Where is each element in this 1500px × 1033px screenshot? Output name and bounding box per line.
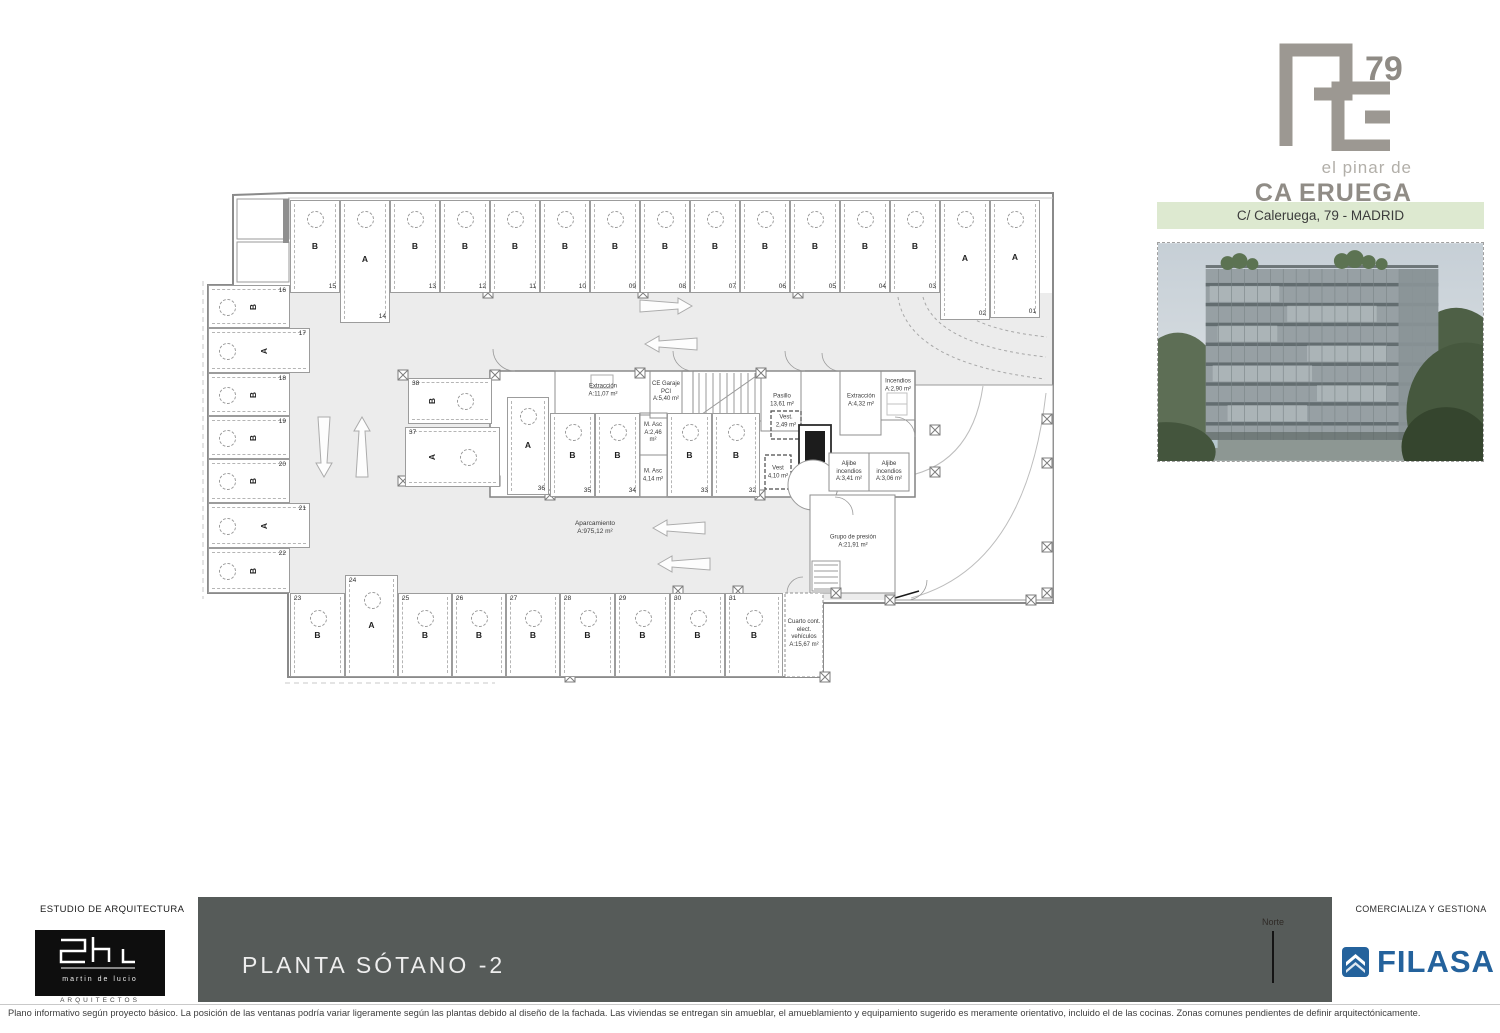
- pillar-circle-icon: [690, 610, 707, 627]
- parking-space-type: A: [260, 347, 269, 353]
- parking-space-number: 23: [294, 596, 301, 603]
- pillar-circle-icon: [417, 610, 434, 627]
- parking-space-type: A: [508, 441, 548, 450]
- north-arrow-icon: [1272, 931, 1274, 983]
- parking-space-type: B: [641, 242, 689, 251]
- parking-space-number: 38: [412, 381, 419, 388]
- parking-space-type: B: [591, 242, 639, 251]
- parking-space: B16: [208, 285, 290, 328]
- pillar-circle-icon: [746, 610, 763, 627]
- building-render-photo: [1157, 242, 1484, 462]
- parking-space-number: 07: [729, 284, 736, 291]
- column-symbol-icon: [756, 368, 766, 378]
- parking-space-type: A: [260, 522, 269, 528]
- parking-space: B09: [590, 200, 640, 293]
- parking-space-type: B: [441, 242, 489, 251]
- pillar-circle-icon: [460, 449, 477, 466]
- parking-space: B08: [640, 200, 690, 293]
- title-bar: PLANTA SÓTANO -2 Norte: [198, 897, 1332, 1002]
- parking-space: B33: [667, 413, 712, 497]
- pillar-circle-icon: [957, 211, 974, 228]
- pillar-circle-icon: [219, 430, 236, 447]
- parking-space: A36: [507, 397, 549, 495]
- pillar-circle-icon: [219, 473, 236, 490]
- parking-space-type: B: [561, 631, 614, 640]
- parking-space: B12: [440, 200, 490, 293]
- pillar-circle-icon: [1007, 211, 1024, 228]
- parking-space-number: 08: [679, 284, 686, 291]
- parking-space-type: B: [399, 631, 451, 640]
- parking-space-number: 30: [674, 596, 681, 603]
- parking-space-type: B: [428, 398, 437, 404]
- parking-space-number: 27: [510, 596, 517, 603]
- parking-space-type: A: [991, 253, 1039, 262]
- pillar-circle-icon: [657, 211, 674, 228]
- pillar-circle-icon: [219, 563, 236, 580]
- parking-space-type: B: [249, 567, 258, 573]
- pillar-circle-icon: [219, 343, 236, 360]
- parking-space-number: 01: [1029, 309, 1036, 316]
- pillar-circle-icon: [635, 610, 652, 627]
- parking-space: B35: [550, 413, 595, 497]
- parking-space-number: 12: [479, 284, 486, 291]
- project-logo-mark-icon: 79: [1262, 36, 1412, 151]
- floor-plan: A01A02B03B04B05B06B07B08B09B10B11B12B13A…: [195, 185, 1075, 695]
- parking-space-number: 16: [279, 288, 286, 295]
- parking-space-type: A: [346, 621, 397, 630]
- pillar-circle-icon: [219, 387, 236, 404]
- parking-space: B23: [290, 593, 345, 677]
- room-label-incendios: IncendiosA:2,90 m²: [881, 379, 915, 394]
- filasa-logo: FILASA: [1342, 944, 1495, 980]
- parking-space-number: 34: [629, 488, 636, 495]
- parking-space-type: B: [491, 242, 539, 251]
- pillar-circle-icon: [219, 299, 236, 316]
- parking-space: B13: [390, 200, 440, 293]
- parking-space: B15: [290, 200, 340, 293]
- parking-space-type: B: [668, 451, 711, 460]
- parking-space-number: 24: [349, 578, 356, 585]
- parking-space: B38: [408, 378, 492, 424]
- parking-space: B07: [690, 200, 740, 293]
- column-symbol-icon: [831, 588, 841, 598]
- parking-space-type: B: [249, 478, 258, 484]
- building-illustration: [1158, 243, 1483, 461]
- logo-number: 79: [1365, 50, 1403, 88]
- parking-space-type: B: [691, 242, 739, 251]
- parking-space-type: B: [249, 303, 258, 309]
- parking-space: B30: [670, 593, 725, 677]
- parking-space-number: 18: [279, 376, 286, 383]
- parking-space-number: 03: [929, 284, 936, 291]
- parking-space-number: 29: [619, 596, 626, 603]
- parking-space-number: 15: [329, 284, 336, 291]
- project-logo: 79 el pinar de CA ERUEGA: [1262, 36, 1412, 208]
- parking-space-type: B: [726, 631, 782, 640]
- parking-space: A37: [405, 427, 500, 487]
- studio-label: ESTUDIO DE ARQUITECTURA: [40, 904, 184, 915]
- parking-space-type: A: [428, 454, 437, 460]
- parking-space: A02: [940, 200, 990, 320]
- pillar-circle-icon: [364, 592, 381, 609]
- pillar-circle-icon: [807, 211, 824, 228]
- parking-space-type: B: [891, 242, 939, 251]
- room-label-pasillo: Pasillo13,61 m²: [767, 394, 797, 409]
- pillar-circle-icon: [307, 211, 324, 228]
- column-symbol-icon: [820, 672, 830, 682]
- room-label-m_asc2: M. Asc4,14 m²: [641, 469, 665, 484]
- parking-space-type: B: [291, 242, 339, 251]
- parking-space-type: B: [551, 451, 594, 460]
- room-label-m_asc1: M. AscA:2,46 m²: [641, 422, 665, 445]
- pillar-circle-icon: [907, 211, 924, 228]
- parking-space-number: 09: [629, 284, 636, 291]
- pillar-circle-icon: [407, 211, 424, 228]
- pillar-circle-icon: [457, 393, 474, 410]
- parking-space: B19: [208, 416, 290, 459]
- parking-space: B29: [615, 593, 670, 677]
- parking-space-number: 25: [402, 596, 409, 603]
- room-label-cuarto_vehiculos: Cuarto cont. elect. vehículosA:15,67 m²: [784, 619, 824, 649]
- room-label-extraccion1: ExtracciónA:11,07 m²: [581, 384, 625, 399]
- disclaimer-text: Plano informativo según proyecto básico.…: [0, 1004, 1500, 1018]
- parking-space-type: B: [596, 451, 639, 460]
- parking-space: A14: [340, 200, 390, 323]
- pillar-circle-icon: [580, 610, 597, 627]
- pillar-circle-icon: [610, 424, 627, 441]
- parking-space-number: 31: [729, 596, 736, 603]
- parking-area-label: AparcamientoA:975,12 m²: [560, 520, 630, 536]
- architect-subtitle: ARQUITECTOS: [35, 997, 165, 1004]
- parking-space-number: 28: [564, 596, 571, 603]
- parking-space-number: 26: [456, 596, 463, 603]
- parking-space: B20: [208, 459, 290, 503]
- column-symbol-icon: [1042, 414, 1052, 424]
- pillar-circle-icon: [357, 211, 374, 228]
- parking-space: B32: [712, 413, 760, 497]
- pillar-circle-icon: [457, 211, 474, 228]
- parking-space: B06: [740, 200, 790, 293]
- parking-space-type: B: [713, 451, 759, 460]
- architect-monogram-icon: [35, 930, 165, 974]
- column-symbol-icon: [1042, 458, 1052, 468]
- column-symbol-icon: [635, 368, 645, 378]
- filasa-roof-icon: [1342, 947, 1369, 977]
- pillar-circle-icon: [471, 610, 488, 627]
- parking-space-type: B: [541, 242, 589, 251]
- address-text: C/ Caleruega, 79 - MADRID: [1237, 208, 1404, 223]
- parking-space-number: 22: [279, 551, 286, 558]
- pillar-circle-icon: [507, 211, 524, 228]
- parking-space-type: B: [616, 631, 669, 640]
- parking-space: A21: [208, 503, 310, 548]
- parking-space: B18: [208, 373, 290, 416]
- parking-space-number: 33: [701, 488, 708, 495]
- column-symbol-icon: [930, 467, 940, 477]
- room-label-ce_garaje: CE Garaje PCIA:5,40 m²: [651, 381, 681, 404]
- parking-space: B31: [725, 593, 783, 677]
- column-symbol-icon: [885, 595, 895, 605]
- pillar-circle-icon: [857, 211, 874, 228]
- sheet-title: PLANTA SÓTANO -2: [242, 952, 505, 979]
- parking-space-number: 02: [979, 311, 986, 318]
- parking-space: B34: [595, 413, 640, 497]
- column-symbol-icon: [930, 425, 940, 435]
- parking-space-number: 21: [299, 506, 306, 513]
- room-label-vest2: Vest4,10 m²: [767, 466, 789, 481]
- parking-space-number: 11: [529, 284, 536, 291]
- parking-space: B22: [208, 548, 290, 593]
- pillar-circle-icon: [565, 424, 582, 441]
- north-indicator: Norte: [1262, 917, 1284, 983]
- plan-sheet: A01A02B03B04B05B06B07B08B09B10B11B12B13A…: [0, 0, 1500, 1033]
- room-label-grupo_presion: Grupo de presiónA:21,91 m²: [823, 535, 883, 550]
- pillar-circle-icon: [707, 211, 724, 228]
- room-label-vest1: Vest.2,49 m²: [773, 415, 799, 430]
- parking-space: A24: [345, 575, 398, 677]
- pillar-circle-icon: [607, 211, 624, 228]
- parking-space-number: 37: [409, 430, 416, 437]
- parking-space: B28: [560, 593, 615, 677]
- column-symbol-icon: [398, 370, 408, 380]
- parking-space: A01: [990, 200, 1040, 318]
- room-label-aljibe2: Aljibe incendiosA:3,06 m²: [871, 461, 907, 484]
- parking-space-type: B: [249, 434, 258, 440]
- parking-space-number: 20: [279, 462, 286, 469]
- parking-space-number: 19: [279, 419, 286, 426]
- parking-space-number: 14: [379, 314, 386, 321]
- column-symbol-icon: [1042, 588, 1052, 598]
- parking-space-type: B: [741, 242, 789, 251]
- address-band: C/ Caleruega, 79 - MADRID: [1157, 202, 1484, 229]
- parking-space: B26: [452, 593, 506, 677]
- column-symbol-icon: [1042, 542, 1052, 552]
- parking-space-number: 05: [829, 284, 836, 291]
- parking-space-type: B: [671, 631, 724, 640]
- room-label-extraccion2: ExtracciónA:4,32 m²: [843, 394, 879, 409]
- parking-space-type: B: [249, 391, 258, 397]
- architect-logo: martin de lucio: [35, 930, 165, 996]
- pillar-circle-icon: [525, 610, 542, 627]
- logo-tagline: el pinar de: [1262, 158, 1412, 178]
- parking-space-number: 13: [429, 284, 436, 291]
- pillar-circle-icon: [310, 610, 327, 627]
- parking-space: B11: [490, 200, 540, 293]
- parking-space-type: B: [291, 631, 344, 640]
- parking-space: A17: [208, 328, 310, 373]
- column-symbol-icon: [1026, 595, 1036, 605]
- parking-space-number: 10: [579, 284, 586, 291]
- pillar-circle-icon: [728, 424, 745, 441]
- pillar-circle-icon: [520, 408, 537, 425]
- parking-space-type: B: [841, 242, 889, 251]
- parking-space-type: B: [791, 242, 839, 251]
- parking-space: B27: [506, 593, 560, 677]
- filasa-name: FILASA: [1377, 944, 1495, 980]
- parking-space: B05: [790, 200, 840, 293]
- parking-space-number: 06: [779, 284, 786, 291]
- pillar-circle-icon: [682, 424, 699, 441]
- parking-space-type: B: [391, 242, 439, 251]
- parking-space-type: A: [941, 254, 989, 263]
- commercial-label: COMERCIALIZA Y GESTIONA: [1352, 904, 1490, 914]
- parking-space-number: 04: [879, 284, 886, 291]
- parking-space-number: 17: [299, 331, 306, 338]
- architect-name: martin de lucio: [35, 976, 165, 983]
- parking-space-number: 36: [538, 486, 545, 493]
- pillar-circle-icon: [557, 211, 574, 228]
- parking-space-type: A: [341, 255, 389, 264]
- parking-space-type: B: [507, 631, 559, 640]
- parking-space: B25: [398, 593, 452, 677]
- parking-space: B10: [540, 200, 590, 293]
- north-label: Norte: [1262, 917, 1284, 927]
- parking-space: B04: [840, 200, 890, 293]
- pillar-circle-icon: [219, 518, 236, 535]
- pillar-circle-icon: [757, 211, 774, 228]
- room-label-aljibe1: Aljibe incendiosA:3,41 m²: [831, 461, 867, 484]
- parking-space-type: B: [453, 631, 505, 640]
- parking-space-number: 32: [749, 488, 756, 495]
- parking-space-number: 35: [584, 488, 591, 495]
- parking-space: B03: [890, 200, 940, 293]
